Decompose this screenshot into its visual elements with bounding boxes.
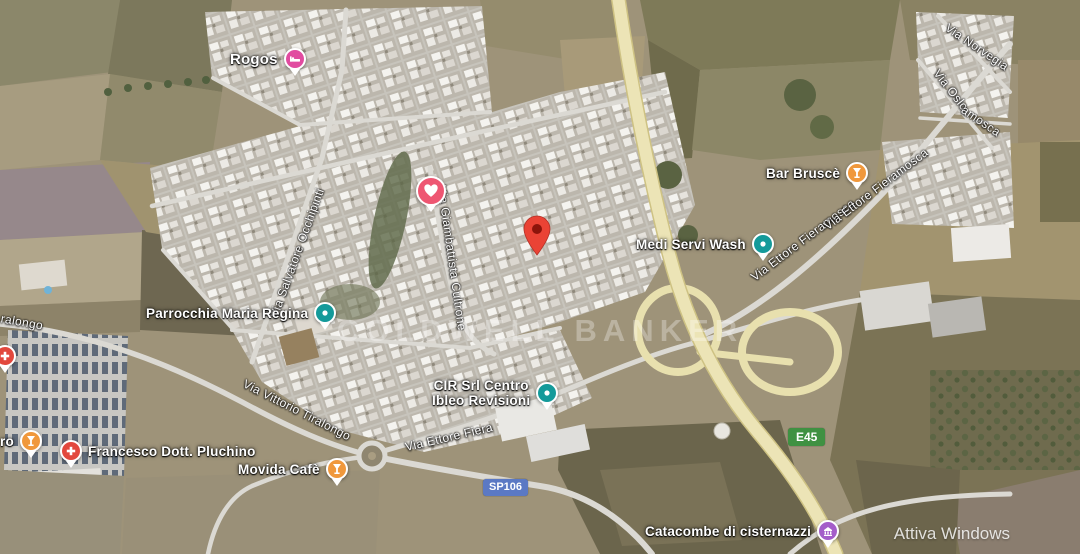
- place-label: Bar Bruscè: [766, 166, 840, 181]
- place-label: CIR Srl CentroIbleo Revisioni: [432, 378, 530, 408]
- road-badge-e45: E45: [788, 428, 825, 446]
- place-francesco-pluchino[interactable]: Francesco Dott. Pluchino: [60, 440, 256, 462]
- place-label: Francesco Dott. Pluchino: [88, 444, 256, 459]
- cocktail-icon[interactable]: [846, 162, 868, 184]
- hotel-icon[interactable]: [284, 48, 306, 70]
- place-movida-cafe[interactable]: Movida Cafè: [238, 458, 348, 480]
- cocktail-icon[interactable]: [20, 430, 42, 452]
- place-label: Medi Servi Wash: [636, 237, 746, 252]
- place-bar-brusce[interactable]: Bar Bruscè: [766, 162, 868, 184]
- place-label: Rogos: [230, 51, 278, 68]
- place-favorite[interactable]: [416, 176, 446, 206]
- place-bar-edge[interactable]: ro: [0, 430, 42, 452]
- satellite-imagery: [0, 0, 1080, 554]
- place-label: Parrocchia Maria Regina: [146, 306, 308, 321]
- place-medi-servi-wash[interactable]: Medi Servi Wash: [636, 233, 774, 255]
- place-parrocchia-maria-regina[interactable]: Parrocchia Maria Regina: [146, 302, 336, 324]
- favorite-heart-icon[interactable]: [416, 176, 446, 206]
- satellite-map[interactable]: Via Salvatore Occhipinti Via Giambattist…: [0, 0, 1080, 554]
- destination-marker-icon[interactable]: [523, 215, 551, 262]
- cocktail-icon[interactable]: [326, 458, 348, 480]
- road-badge-sp106: SP106: [483, 479, 528, 496]
- generic-poi-icon[interactable]: [752, 233, 774, 255]
- place-label: ro: [0, 434, 14, 449]
- windows-activation-watermark: Attiva Windows: [894, 524, 1010, 544]
- place-hospital-edge[interactable]: [0, 345, 16, 367]
- place-catacombe[interactable]: Catacombe di cisternazzi: [645, 520, 839, 542]
- place-label: Movida Cafè: [238, 462, 320, 477]
- medical-cross-icon[interactable]: [60, 440, 82, 462]
- place-label: Catacombe di cisternazzi: [645, 524, 811, 539]
- brand-watermark: COLDWELL BANKER: [337, 313, 743, 349]
- generic-poi-icon[interactable]: [314, 302, 336, 324]
- place-rogos[interactable]: Rogos: [230, 48, 306, 70]
- museum-icon[interactable]: [817, 520, 839, 542]
- generic-poi-icon[interactable]: [536, 382, 558, 404]
- medical-cross-icon[interactable]: [0, 345, 16, 367]
- place-cir-srl[interactable]: CIR Srl CentroIbleo Revisioni: [432, 378, 558, 408]
